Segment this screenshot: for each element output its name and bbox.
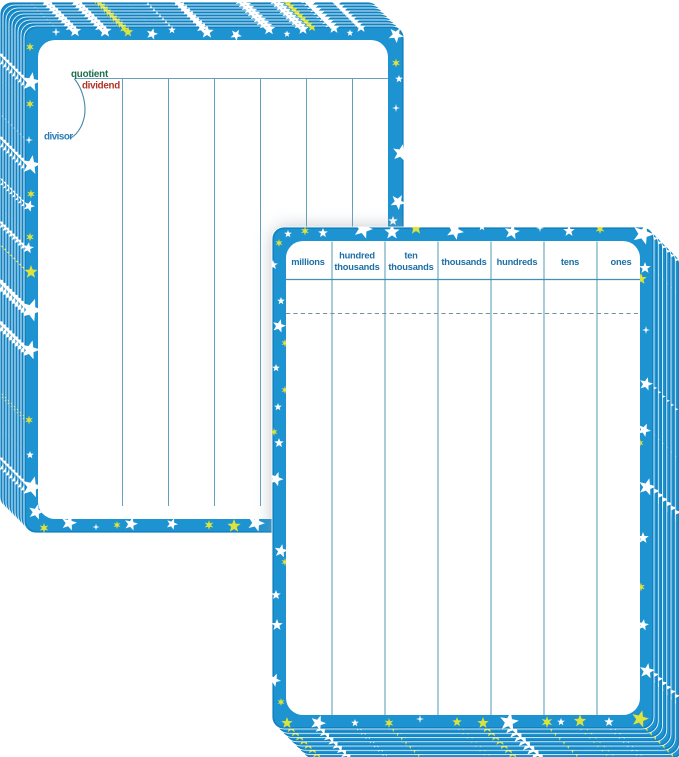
svg-text:ten: ten bbox=[404, 251, 418, 261]
svg-text:tens: tens bbox=[561, 257, 579, 267]
svg-text:hundreds: hundreds bbox=[497, 257, 538, 267]
svg-text:millions: millions bbox=[291, 257, 325, 267]
svg-text:thousands: thousands bbox=[388, 262, 433, 272]
svg-text:hundred: hundred bbox=[339, 251, 375, 261]
svg-text:ones: ones bbox=[611, 257, 632, 267]
svg-text:thousands: thousands bbox=[334, 262, 379, 272]
svg-text:quotient: quotient bbox=[71, 69, 109, 80]
svg-text:thousands: thousands bbox=[441, 257, 486, 267]
svg-text:divisor: divisor bbox=[44, 132, 73, 143]
svg-text:dividend: dividend bbox=[82, 81, 120, 92]
